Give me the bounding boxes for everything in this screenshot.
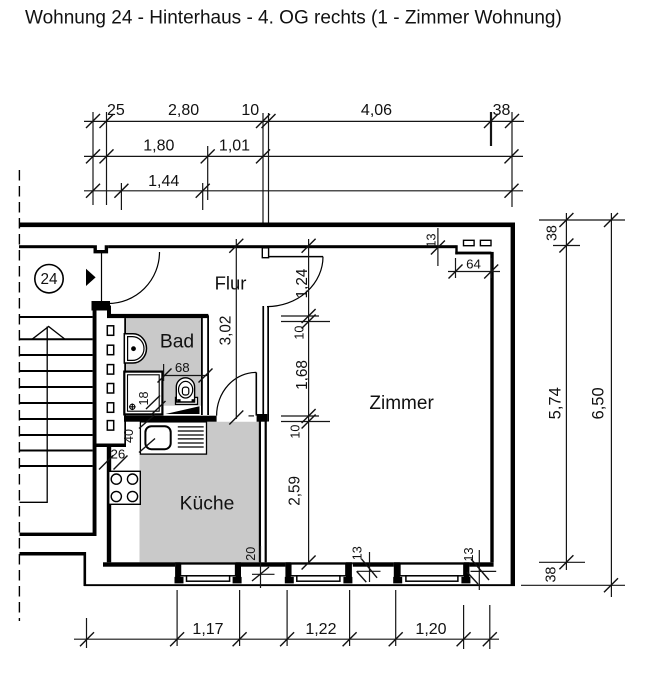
svg-text:64: 64 [466,257,481,272]
svg-text:Zimmer: Zimmer [369,393,434,414]
svg-text:25: 25 [107,102,125,119]
svg-text:1,20: 1,20 [415,621,446,638]
svg-text:10: 10 [241,102,259,119]
svg-text:Bad: Bad [160,332,194,353]
svg-text:68: 68 [175,360,190,375]
svg-text:10: 10 [292,326,306,340]
svg-text:1,01: 1,01 [219,137,250,154]
svg-text:13: 13 [351,546,365,560]
svg-text:1,44: 1,44 [148,173,179,190]
svg-text:Küche: Küche [180,494,235,515]
svg-text:5,74: 5,74 [546,387,564,419]
svg-text:13: 13 [424,233,438,247]
svg-text:3,02: 3,02 [218,316,235,346]
svg-text:2,80: 2,80 [168,102,199,119]
svg-text:1,24: 1,24 [294,268,311,298]
svg-text:20: 20 [244,547,258,561]
svg-text:Flur: Flur [215,273,247,294]
svg-text:2,59: 2,59 [287,476,304,506]
svg-text:1,68: 1,68 [294,360,311,390]
svg-text:4,06: 4,06 [361,102,392,119]
svg-text:1,22: 1,22 [305,621,336,638]
svg-text:1,17: 1,17 [192,621,223,638]
svg-text:40: 40 [122,429,136,443]
svg-text:38: 38 [544,567,560,583]
svg-text:13: 13 [462,547,476,561]
svg-text:26: 26 [111,447,126,462]
svg-text:Wohnung 24 - Hinterhaus - 4. O: Wohnung 24 - Hinterhaus - 4. OG rechts (… [25,8,562,29]
svg-text:38: 38 [493,102,511,119]
svg-text:18: 18 [137,391,151,405]
svg-text:24: 24 [40,271,58,288]
svg-text:1,80: 1,80 [143,137,174,154]
svg-text:10: 10 [288,425,302,439]
svg-text:6,50: 6,50 [589,387,607,419]
svg-text:38: 38 [545,225,561,241]
